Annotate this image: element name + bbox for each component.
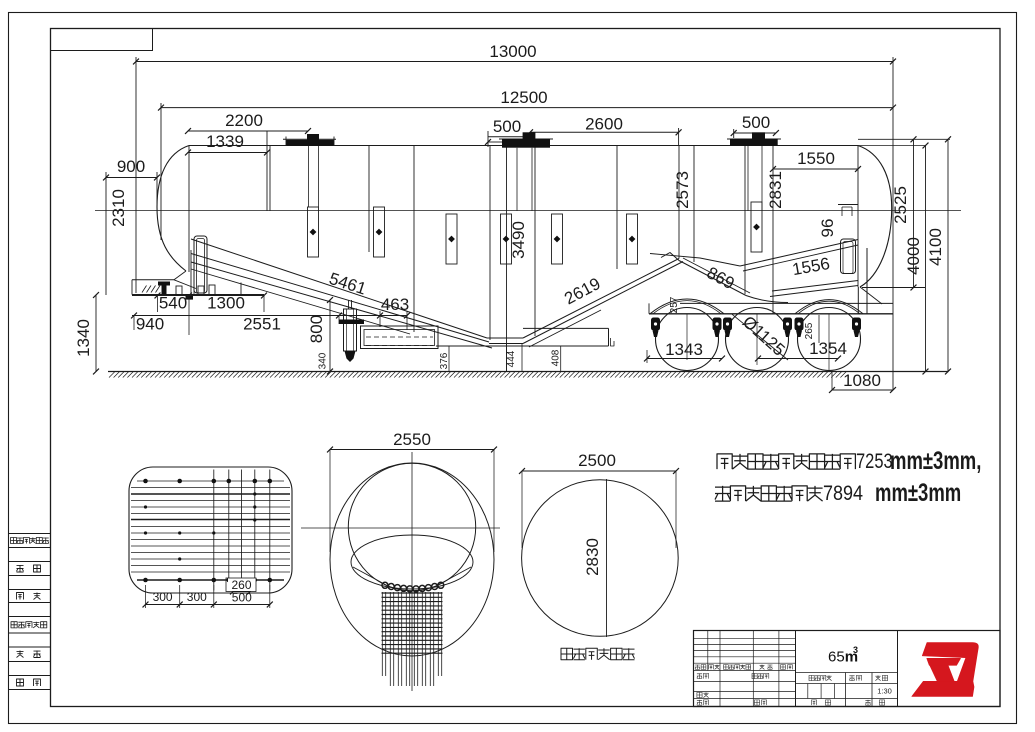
- svg-text:257: 257: [669, 296, 680, 313]
- svg-text:4100: 4100: [926, 228, 945, 266]
- svg-text:1080: 1080: [843, 371, 881, 390]
- svg-text:1550: 1550: [797, 149, 835, 168]
- svg-text:1300: 1300: [207, 294, 245, 313]
- svg-text:2551: 2551: [243, 315, 281, 334]
- svg-text:500: 500: [742, 113, 770, 132]
- svg-text:265: 265: [804, 322, 815, 339]
- svg-text:2830: 2830: [583, 538, 602, 576]
- svg-text:1340: 1340: [74, 319, 93, 357]
- svg-text:1:30: 1:30: [877, 687, 892, 696]
- svg-text:940: 940: [136, 315, 164, 334]
- svg-text:900: 900: [117, 157, 145, 176]
- svg-text:2831: 2831: [766, 171, 785, 209]
- svg-text:463: 463: [381, 295, 409, 314]
- svg-text:500: 500: [232, 591, 252, 605]
- svg-text:800: 800: [307, 315, 326, 343]
- svg-text:2310: 2310: [109, 189, 128, 227]
- svg-text:408: 408: [551, 349, 562, 366]
- svg-text:2525: 2525: [891, 186, 910, 224]
- svg-text:1339: 1339: [206, 132, 244, 151]
- svg-text:2500: 2500: [578, 451, 616, 470]
- svg-text:540: 540: [159, 294, 187, 313]
- svg-text:376: 376: [439, 352, 450, 369]
- svg-text:12500: 12500: [500, 88, 547, 107]
- svg-text:3: 3: [853, 645, 858, 655]
- svg-text:7894: 7894: [823, 482, 863, 506]
- svg-text:300: 300: [187, 590, 207, 604]
- svg-text:1343: 1343: [665, 340, 703, 359]
- svg-text:2550: 2550: [393, 430, 431, 449]
- svg-text:2600: 2600: [585, 115, 623, 134]
- svg-text:96: 96: [818, 219, 837, 238]
- svg-text:mm±3mm: mm±3mm: [875, 478, 961, 506]
- svg-text:500: 500: [493, 117, 521, 136]
- svg-text:340: 340: [318, 352, 329, 369]
- svg-text:444: 444: [506, 350, 517, 367]
- svg-text:1354: 1354: [809, 339, 847, 358]
- svg-text:2200: 2200: [225, 111, 263, 130]
- svg-text:4000: 4000: [904, 237, 923, 275]
- svg-text:13000: 13000: [489, 42, 536, 61]
- svg-text:300: 300: [153, 590, 173, 604]
- svg-text:2573: 2573: [673, 171, 692, 209]
- svg-text:7253: 7253: [856, 450, 893, 474]
- svg-text:mm±3mm,: mm±3mm,: [890, 446, 981, 474]
